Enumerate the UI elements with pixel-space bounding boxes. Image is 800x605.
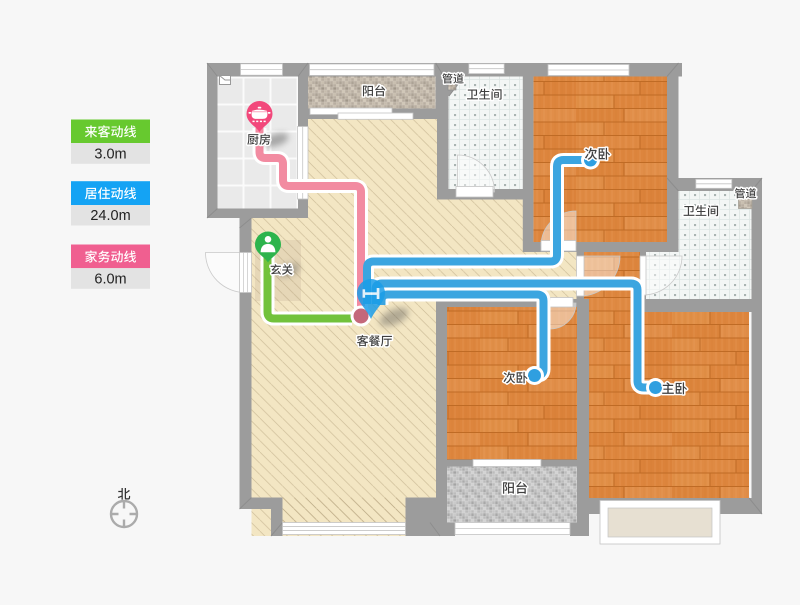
svg-text:24.0m: 24.0m bbox=[90, 208, 130, 224]
svg-text:6.0m: 6.0m bbox=[94, 271, 126, 287]
svg-text:3.0m: 3.0m bbox=[94, 146, 126, 162]
